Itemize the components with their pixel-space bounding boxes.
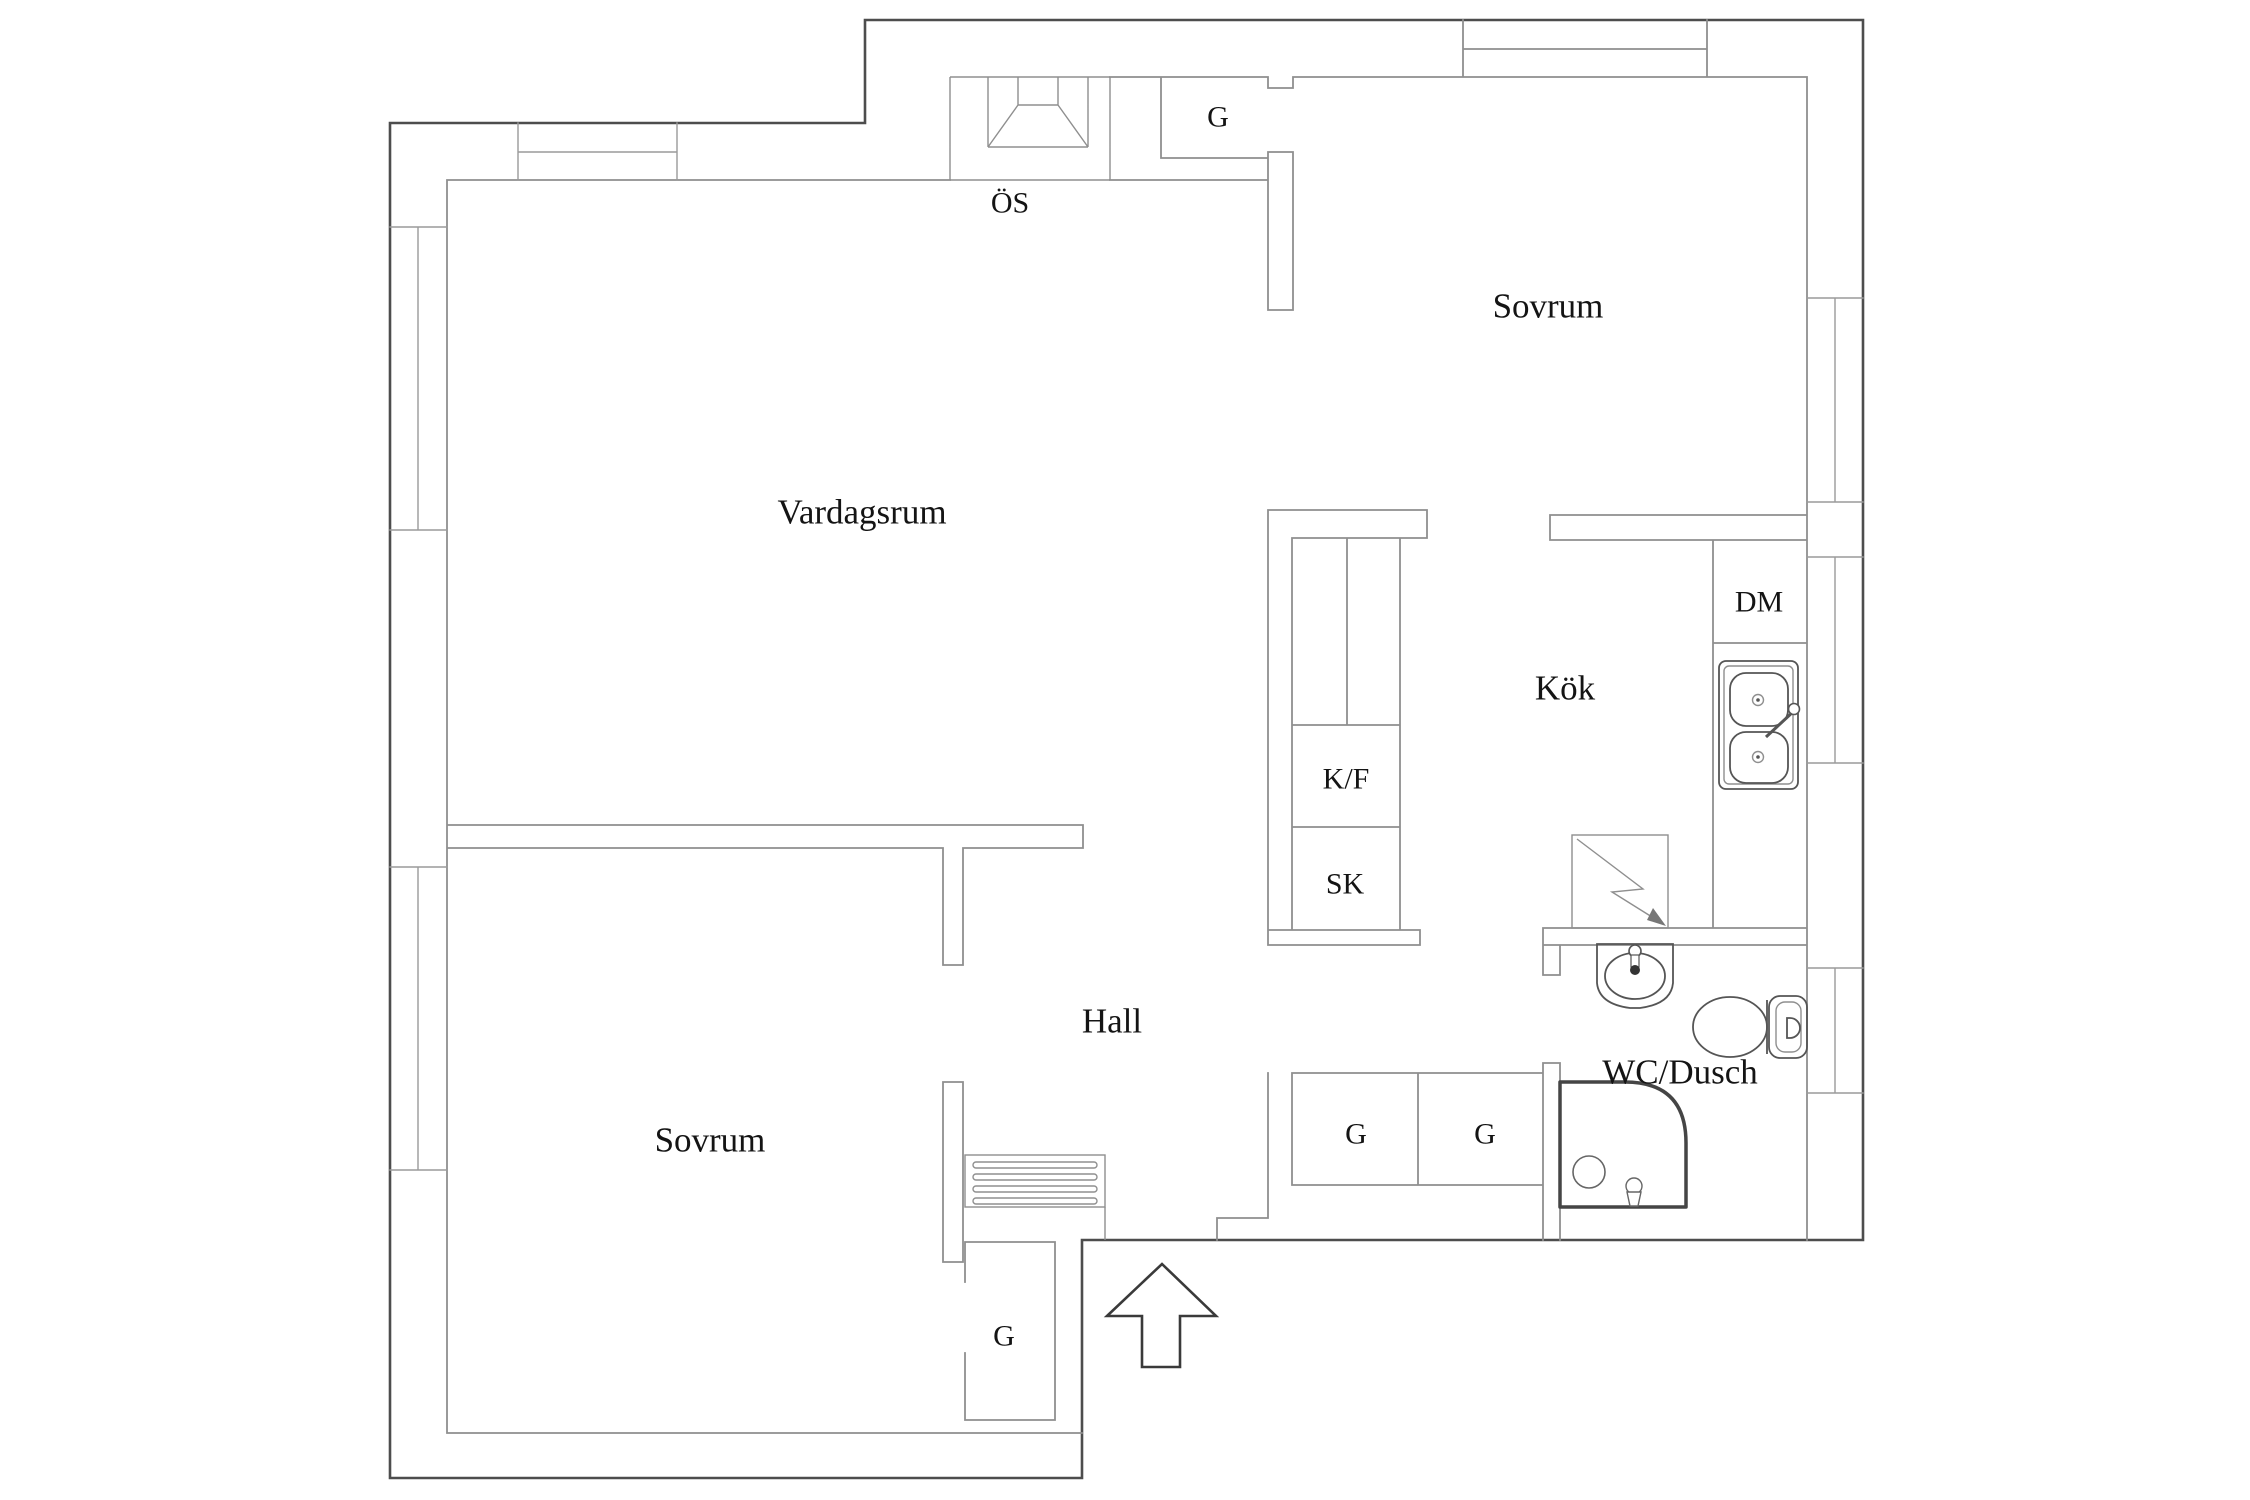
label-wardrobe-bedroom: G xyxy=(993,1320,1015,1353)
washbasin-icon xyxy=(1597,944,1673,1008)
toilet-icon xyxy=(1693,996,1807,1058)
room-label-sovrum-top: Sovrum xyxy=(1493,287,1604,326)
label-cleaning-cabinet: SK xyxy=(1326,868,1365,901)
entrance-arrow-icon xyxy=(1107,1264,1216,1367)
room-label-wc-dusch: WC/Dusch xyxy=(1602,1053,1758,1092)
label-wardrobe-hall-left: G xyxy=(1345,1118,1367,1151)
radiator-slat xyxy=(973,1162,1097,1168)
outer-boundary-wall xyxy=(390,20,1863,1478)
stove-bolt-arrowhead xyxy=(1647,908,1666,926)
room-label-vardagsrum: Vardagsrum xyxy=(777,493,946,532)
label-wardrobe-hall-right: G xyxy=(1474,1118,1496,1151)
sink-drain-top-dot xyxy=(1756,698,1760,702)
sink-drain-bottom-dot xyxy=(1756,755,1760,759)
sink-tap-knob xyxy=(1789,704,1800,715)
radiator-slat xyxy=(973,1186,1097,1192)
radiator-body xyxy=(965,1155,1105,1207)
shower-enclosure xyxy=(1560,1082,1686,1207)
room-label-kok: Kök xyxy=(1535,669,1596,708)
label-wardrobe-top: G xyxy=(1207,101,1229,134)
toilet-bowl xyxy=(1693,997,1767,1057)
stove-bolt xyxy=(1577,839,1660,922)
stove-icon xyxy=(1572,835,1668,928)
shower-icon xyxy=(1560,1082,1686,1207)
fireplace-icon xyxy=(950,77,1110,180)
floor-plan: Vardagsrum Sovrum Sovrum Kök Hall WC/Dus… xyxy=(0,0,2250,1500)
fireplace-outline xyxy=(950,77,1110,180)
radiator-icon xyxy=(965,1155,1105,1240)
radiator-slat xyxy=(973,1174,1097,1180)
kitchen-sink-icon xyxy=(1719,661,1800,789)
room-label-hall: Hall xyxy=(1082,1002,1143,1041)
radiator-slat xyxy=(973,1198,1097,1204)
shower-handle-base xyxy=(1627,1192,1641,1206)
feature-labels: ÖS G K/F SK DM G G G xyxy=(991,101,1783,1353)
label-oppen-spis: ÖS xyxy=(991,187,1029,220)
room-labels: Vardagsrum Sovrum Sovrum Kök Hall WC/Dus… xyxy=(655,287,1759,1160)
label-fridge-freezer: K/F xyxy=(1323,763,1370,796)
sink-inner-contour xyxy=(1724,666,1793,784)
label-dishwasher: DM xyxy=(1735,586,1783,619)
shower-drain xyxy=(1573,1156,1605,1188)
toilet-flush-button xyxy=(1787,1018,1800,1038)
washbasin-tap-dot xyxy=(1630,965,1640,975)
interior-walls xyxy=(447,20,1807,1433)
entrance-arrow xyxy=(1107,1264,1216,1367)
interior-wall-lines xyxy=(447,20,1807,1433)
room-label-sovrum-bottom: Sovrum xyxy=(655,1121,766,1160)
outer-walls xyxy=(390,20,1863,1478)
toilet-tank-inner xyxy=(1776,1002,1801,1052)
